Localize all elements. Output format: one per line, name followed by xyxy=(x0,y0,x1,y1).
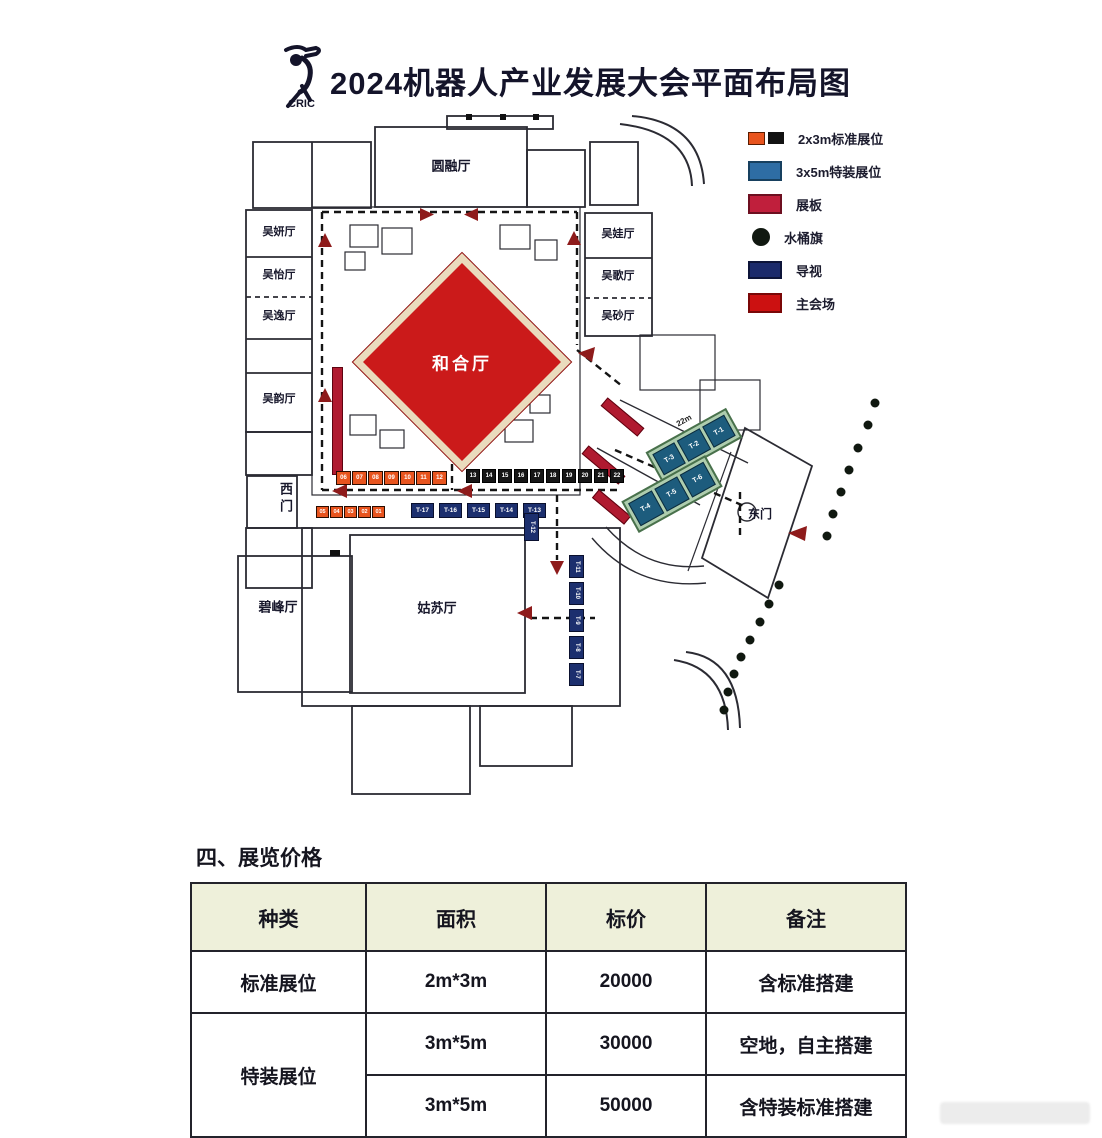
hall-label-left-3: 吴逸厅 xyxy=(263,307,296,323)
cell-price: 30000 xyxy=(546,1013,706,1075)
booth-label: T-9 xyxy=(569,609,584,632)
east-gate-label: 东门 xyxy=(748,505,772,522)
booth-label: T-17 xyxy=(411,503,434,518)
watermark xyxy=(940,1102,1090,1124)
cell-price: 50000 xyxy=(546,1075,706,1137)
booth-label: 18 xyxy=(546,469,560,483)
booth-label: 10 xyxy=(400,471,415,485)
hehe-hall-label: 和合厅 xyxy=(432,350,492,375)
booth-label: 04 xyxy=(330,506,343,518)
booth-label: 08 xyxy=(368,471,383,485)
booth-label: 11 xyxy=(416,471,431,485)
booth-label: 22 xyxy=(610,469,624,483)
signage-booth-t12: T-12 xyxy=(524,513,539,541)
hall-label-right-3: 吴砂厅 xyxy=(602,307,635,323)
standard-booth-row-orange-2: 0504030201 xyxy=(316,506,386,518)
water-bucket-flag-dots xyxy=(720,399,880,715)
cell-type: 特装展位 xyxy=(191,1013,366,1137)
booth-label: 20 xyxy=(578,469,592,483)
booth-label: 02 xyxy=(358,506,371,518)
table-row: 特装展位 3m*5m 30000 空地，自主搭建 xyxy=(191,1013,906,1075)
booth-label: T-16 xyxy=(439,503,462,518)
booth-label: T-15 xyxy=(467,503,490,518)
hall-label-right-1: 吴娃厅 xyxy=(602,225,635,241)
visitor-route-dashed xyxy=(322,212,744,618)
cell-area: 3m*5m xyxy=(366,1013,546,1075)
hall-label-right-2: 吴歌厅 xyxy=(602,267,635,283)
west-gate-label: 西门 xyxy=(252,482,294,516)
hall-label-gusu: 姑苏厅 xyxy=(417,598,456,617)
signage-booth-column: T-11T-10T-9T-8T-7 xyxy=(569,555,584,690)
booth-label: T-7 xyxy=(569,663,584,686)
booth-label: 01 xyxy=(372,506,385,518)
booth-label: 07 xyxy=(352,471,367,485)
booth-label: T-10 xyxy=(569,582,584,605)
header-price: 标价 xyxy=(546,883,706,951)
hall-label-yuanrong: 圆融厅 xyxy=(431,156,470,175)
booth-label: 13 xyxy=(466,469,480,483)
cell-area: 2m*3m xyxy=(366,951,546,1013)
pricing-table: 种类 面积 标价 备注 标准展位 2m*3m 20000 含标准搭建 特装展位 … xyxy=(190,882,907,1138)
route-arrows xyxy=(318,208,807,620)
cell-note: 空地，自主搭建 xyxy=(706,1013,906,1075)
booth-label: 17 xyxy=(530,469,544,483)
booth-label: 09 xyxy=(384,471,399,485)
booth-label: T-14 xyxy=(495,503,518,518)
booth-label: 14 xyxy=(482,469,496,483)
booth-label: 16 xyxy=(514,469,528,483)
pricing-section-title: 四、展览价格 xyxy=(196,842,322,872)
booth-label: 21 xyxy=(594,469,608,483)
standard-booth-row-black: 13141516171819202122 xyxy=(466,469,626,483)
header-area: 面积 xyxy=(366,883,546,951)
table-header-row: 种类 面积 标价 备注 xyxy=(191,883,906,951)
standard-booth-row-orange: 06070809101112 xyxy=(336,471,448,485)
cell-type: 标准展位 xyxy=(191,951,366,1013)
display-board xyxy=(332,367,343,475)
header-note: 备注 xyxy=(706,883,906,951)
booth-label: 06 xyxy=(336,471,351,485)
booth-label: 15 xyxy=(498,469,512,483)
booth-label: 19 xyxy=(562,469,576,483)
hall-label-left-1: 吴妍厅 xyxy=(263,223,296,239)
header-type: 种类 xyxy=(191,883,366,951)
booth-label: 12 xyxy=(432,471,447,485)
cell-area: 3m*5m xyxy=(366,1075,546,1137)
booth-label: T-8 xyxy=(569,636,584,659)
cell-note: 含标准搭建 xyxy=(706,951,906,1013)
hall-label-left-2: 吴怡厅 xyxy=(263,266,296,282)
cell-note: 含特装标准搭建 xyxy=(706,1075,906,1137)
hall-label-left-4: 吴韵厅 xyxy=(263,390,296,406)
booth-label: T-11 xyxy=(569,555,584,578)
hall-label-bifeng: 碧峰厅 xyxy=(258,597,297,616)
table-row: 标准展位 2m*3m 20000 含标准搭建 xyxy=(191,951,906,1013)
cell-price: 20000 xyxy=(546,951,706,1013)
booth-label: 05 xyxy=(316,506,329,518)
booth-label: 03 xyxy=(344,506,357,518)
